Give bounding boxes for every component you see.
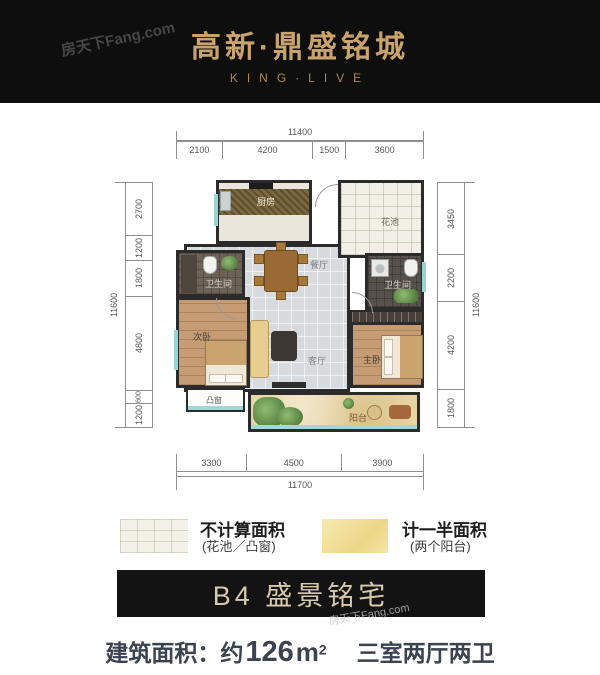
dim-value: 11700 — [288, 480, 312, 490]
legend-swatch-excluded — [120, 519, 188, 553]
chair-icon — [298, 276, 308, 286]
fridge-icon — [220, 191, 231, 211]
sofa — [250, 320, 269, 378]
dimensions-left: 11600 2700 1200 1800 4800 600 1200 — [103, 182, 153, 428]
plant-icon — [343, 398, 354, 409]
unit-banner: B4 盛景铭宅 — [117, 570, 485, 617]
chair-icon — [298, 254, 308, 264]
dim-value: 4200 — [258, 145, 278, 155]
dim-value: 3300 — [201, 458, 221, 468]
area-label: 建筑面积： — [105, 640, 220, 666]
page: 房天下Fang.com 高新·鼎盛铭城 KING·LIVE 11400 2100… — [0, 0, 600, 675]
area-approx: 约 — [220, 640, 243, 666]
toilet-icon — [404, 259, 418, 277]
tv-stand — [272, 382, 306, 388]
dimension-segments-top: 2100 4200 1500 3600 — [176, 141, 424, 159]
blanket — [206, 341, 246, 365]
entry-door-arc-icon — [315, 184, 338, 207]
dim-value: 1200 — [134, 405, 144, 425]
dimension-segments-left: 2700 1200 1800 4800 600 1200 — [126, 182, 153, 428]
room-label-balcony: 阳台 — [349, 411, 367, 424]
dim-value: 2200 — [446, 268, 456, 288]
dim-segment: 3900 — [341, 454, 424, 471]
pillow-icon — [384, 339, 393, 357]
area-value: 126 — [245, 636, 293, 668]
toilet-icon — [203, 256, 217, 274]
room-bath-right: 卫生间 — [365, 253, 424, 310]
dim-segment: 1500 — [312, 142, 345, 159]
window-icon — [214, 194, 218, 226]
dim-segment: 3600 — [345, 142, 424, 159]
dim-value: 2100 — [189, 145, 209, 155]
window-glass-icon — [251, 425, 417, 429]
dim-segment: 2700 — [126, 182, 152, 235]
dim-value: 3900 — [372, 458, 392, 468]
dim-segment: 4800 — [126, 296, 152, 390]
chair-icon — [254, 254, 264, 264]
dim-segment: 3300 — [176, 454, 246, 471]
rug — [271, 331, 297, 361]
dimension-total-left: 11600 — [103, 182, 126, 428]
chair-icon — [254, 276, 264, 286]
room-label-bedroom-master: 主卧 — [363, 353, 381, 366]
dim-value: 1200 — [134, 238, 144, 258]
dim-segment: 1200 — [126, 403, 152, 428]
dim-segment: 4200 — [438, 301, 464, 389]
pillow-icon — [384, 357, 393, 375]
washing-machine-icon — [371, 259, 389, 277]
dim-value: 1500 — [319, 145, 339, 155]
dimension-segments-right: 3450 2200 4200 1800 — [437, 182, 464, 428]
bed — [205, 340, 247, 386]
dim-value: 11600 — [471, 293, 481, 317]
room-label-flower-pond: 花池 — [381, 215, 399, 228]
window-glass-icon — [188, 406, 243, 410]
room-label-dining: 餐厅 — [310, 258, 328, 271]
pillow-icon — [225, 374, 243, 383]
dim-value: 4200 — [446, 335, 456, 355]
room-bedroom-second: 次卧 — [176, 297, 250, 388]
room-label-kitchen: 厨房 — [257, 195, 275, 208]
room-layout: 三室两厅两卫 — [357, 640, 495, 666]
dining-table — [264, 250, 298, 292]
floor-plan: 厨房 花池 餐厅 客厅 卫生间 — [176, 180, 424, 435]
dimension-total-right: 11600 — [464, 182, 487, 428]
dimension-segments-bottom: 3300 4500 3900 — [176, 454, 424, 472]
bay-window: 凸窗 — [186, 388, 245, 412]
dim-value: 600 — [136, 391, 143, 403]
room-label-bath-left: 卫生间 — [205, 277, 232, 290]
dimensions-top: 11400 2100 4200 1500 3600 — [176, 127, 424, 159]
bed — [381, 335, 423, 379]
room-bath-left: 卫生间 — [176, 250, 245, 297]
project-subtitle: KING·LIVE — [0, 71, 600, 85]
dim-segment: 2200 — [438, 254, 464, 301]
plant-icon — [277, 407, 303, 427]
dim-segment: 2100 — [176, 142, 222, 159]
dim-segment: 4500 — [246, 454, 341, 471]
legend-sub-half: (两个阳台) — [410, 536, 471, 555]
room-label-bath-right: 卫生间 — [384, 278, 411, 291]
dimension-total-top: 11400 — [176, 127, 424, 141]
legend-swatch-half — [322, 519, 388, 553]
dim-segment: 1200 — [126, 235, 152, 259]
dim-value: 4800 — [134, 333, 144, 353]
dim-segment: 1800 — [126, 260, 152, 296]
window-icon — [422, 262, 426, 292]
balcony-table-icon — [367, 405, 382, 420]
shower-plant-icon — [394, 289, 418, 303]
dim-segment: 4200 — [222, 142, 313, 159]
room-label-bay-window: 凸窗 — [206, 395, 222, 406]
dim-value: 11400 — [288, 127, 312, 137]
area-sup: 2 — [319, 642, 327, 658]
dim-value: 2700 — [134, 199, 144, 219]
area-unit: m — [296, 637, 319, 667]
footer-info: 建筑面积：约126m2三室两厅两卫 — [0, 634, 600, 669]
dim-value: 3600 — [375, 145, 395, 155]
window-icon — [174, 330, 178, 370]
dim-segment: 1800 — [438, 389, 464, 428]
legend-sub-excluded: (花池／凸窗) — [202, 536, 276, 555]
room-kitchen: 厨房 — [216, 180, 312, 244]
vanity — [181, 255, 197, 293]
dim-value: 1800 — [134, 268, 144, 288]
dim-value: 4500 — [284, 458, 304, 468]
lounge-chair-icon — [389, 405, 411, 419]
dim-segment: 600 — [126, 390, 152, 403]
blanket — [400, 336, 422, 378]
room-flower-pond: 花池 — [338, 180, 424, 258]
room-bedroom-master: 主卧 — [350, 322, 424, 388]
room-balcony: 阳台 — [248, 392, 420, 432]
dimension-total-bottom: 11700 — [176, 476, 424, 494]
plant-icon — [221, 256, 238, 270]
dimensions-bottom: 3300 4500 3900 11700 — [176, 454, 424, 494]
dimensions-right: 3450 2200 4200 1800 11600 — [437, 182, 487, 428]
header: 房天下Fang.com 高新·鼎盛铭城 KING·LIVE — [0, 0, 600, 103]
dim-value: 3450 — [446, 209, 456, 229]
dim-segment: 3450 — [438, 182, 464, 254]
room-label-living: 客厅 — [308, 354, 326, 367]
dim-value: 1800 — [446, 398, 456, 418]
room-label-bedroom-second: 次卧 — [193, 330, 211, 343]
dim-value: 11600 — [109, 293, 119, 317]
